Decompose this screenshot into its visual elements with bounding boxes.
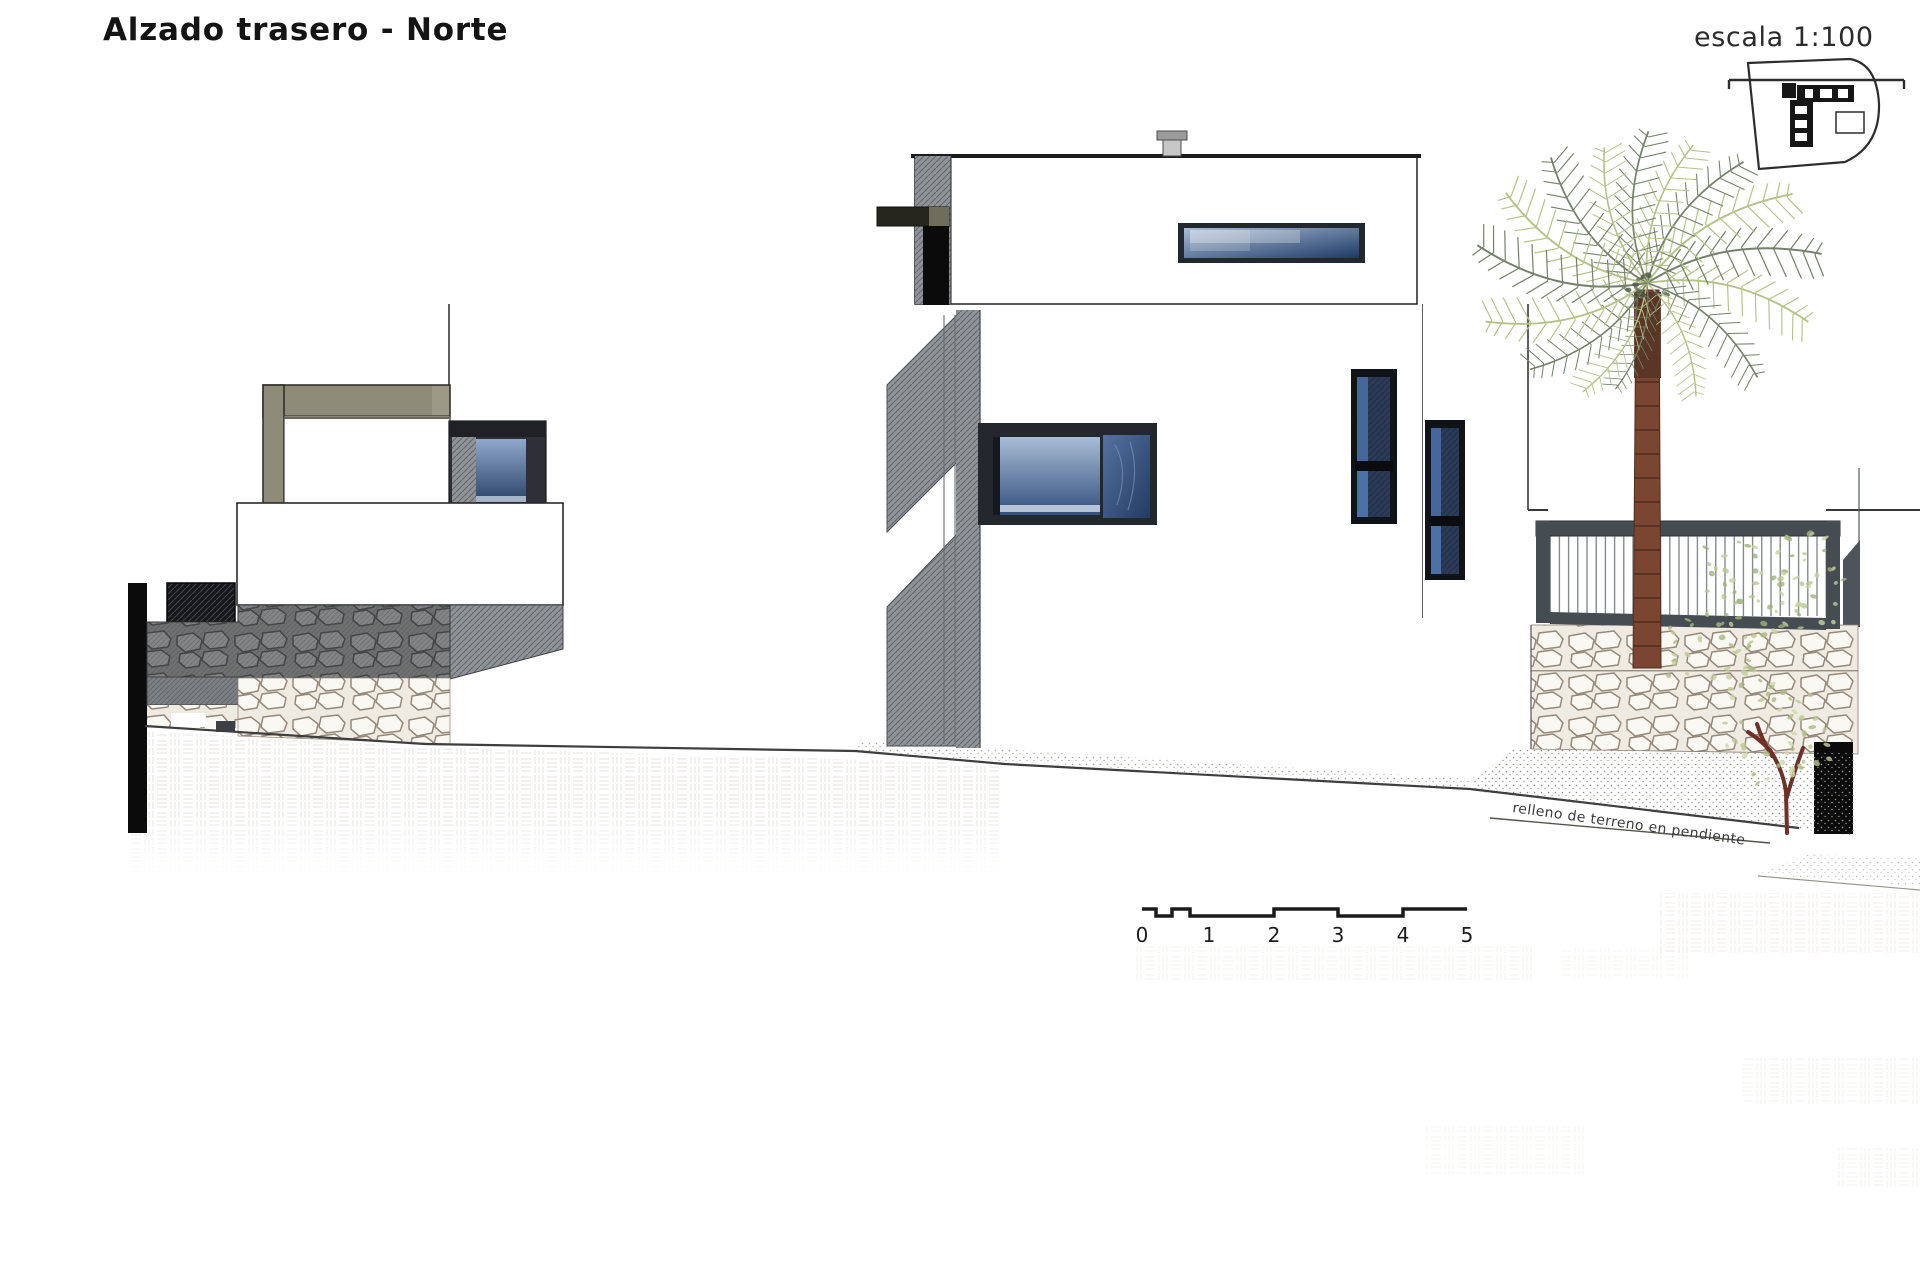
left-window	[449, 421, 546, 504]
scale-number: 3	[1332, 923, 1345, 947]
elevation-sheet: Alzado trasero - Norte escala 1:100	[0, 0, 1920, 1280]
dark-hatched-box	[167, 583, 235, 622]
chimney	[1157, 131, 1187, 156]
retaining-stone-wall	[1531, 625, 1858, 754]
section-post	[128, 583, 147, 833]
main-window	[978, 423, 1157, 525]
left-terrace-parapet	[263, 385, 450, 504]
scale-number: 0	[1136, 923, 1149, 947]
scale-number: 4	[1397, 923, 1410, 947]
scale-number: 5	[1461, 923, 1474, 947]
scale-bar: 0 1 2 3 4 5	[1136, 909, 1474, 947]
key-plan	[1729, 59, 1904, 169]
narrow-window-b	[1425, 420, 1465, 580]
upper-window	[1178, 223, 1365, 263]
column	[923, 226, 949, 305]
scale-number: 2	[1268, 923, 1281, 947]
elevation-drawing: relleno de terreno en pendiente	[0, 0, 1920, 1280]
railing-bars	[1550, 536, 1826, 616]
railing	[1536, 521, 1840, 630]
scale-number: 1	[1203, 923, 1216, 947]
shadow-wedge	[1843, 540, 1860, 627]
narrow-window-a	[1351, 369, 1397, 524]
cantilever-beam	[877, 207, 949, 305]
